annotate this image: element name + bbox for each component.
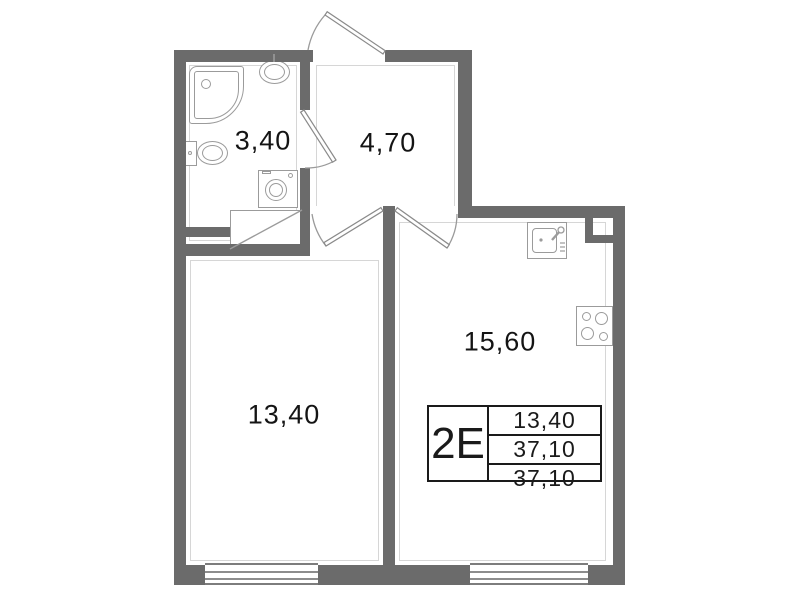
kitchen-outline	[399, 222, 606, 561]
entrance-door-swing-arc	[308, 15, 325, 50]
wall-right	[613, 206, 625, 585]
entrance-door-leaf	[325, 12, 385, 54]
bathroom-area-label: 3,40	[235, 126, 292, 157]
washing-machine-door-inner	[269, 183, 283, 197]
kitchen-area-label: 15,60	[464, 327, 537, 358]
wall-top-left	[174, 50, 313, 62]
wall-bathroom-right-upper	[300, 62, 310, 110]
living-room-area-label: 13,40	[248, 400, 321, 431]
living-room-door-swing-arc	[312, 214, 326, 246]
area-row-total: 37,10	[489, 434, 600, 463]
vent-shaft-wall-bottom	[585, 235, 613, 243]
wall-bathroom-bottom	[174, 244, 310, 256]
apartment-type-label: 2Е	[429, 407, 489, 480]
apartment-area-rows: 13,40 37,10 37,10	[489, 407, 600, 480]
wall-duct-stub	[182, 227, 230, 237]
wall-bottom-left	[174, 565, 205, 585]
washing-machine-latch	[262, 171, 271, 174]
washing-machine-knob	[288, 173, 293, 178]
living-room-door-leaf	[324, 208, 383, 246]
window-living-room	[205, 563, 318, 585]
toilet-tank-button	[188, 151, 192, 155]
bathroom-sink-inner	[264, 64, 285, 80]
floor-plan: 3,40 4,70 13,40 15,60 2Е 13,40 37,10 37,…	[0, 0, 799, 600]
stove-burner-small-2	[599, 332, 608, 341]
apartment-info-table: 2Е 13,40 37,10 37,10	[427, 405, 602, 482]
area-row-living: 13,40	[489, 407, 600, 434]
wall-bottom-right	[588, 565, 625, 585]
window-kitchen	[470, 563, 588, 585]
wall-kitchen-top	[458, 206, 625, 218]
wall-room-kitchen	[383, 206, 395, 565]
wall-bottom-center	[318, 565, 470, 585]
toilet-bowl-inner	[202, 145, 223, 161]
stove-burner-large-1	[595, 312, 608, 325]
area-row-total-with-balcony: 37,10	[489, 463, 600, 492]
bathtub-drain	[201, 79, 211, 89]
wall-bathroom-right-lower	[300, 168, 310, 256]
wall-left	[174, 50, 186, 585]
kitchen-sink-basin	[532, 228, 557, 253]
stove-icon	[576, 306, 613, 346]
stove-burner-small-1	[582, 312, 591, 321]
stove-burner-large-2	[581, 327, 594, 340]
hallway-area-label: 4,70	[360, 128, 417, 159]
wall-hallway-right	[458, 50, 472, 218]
